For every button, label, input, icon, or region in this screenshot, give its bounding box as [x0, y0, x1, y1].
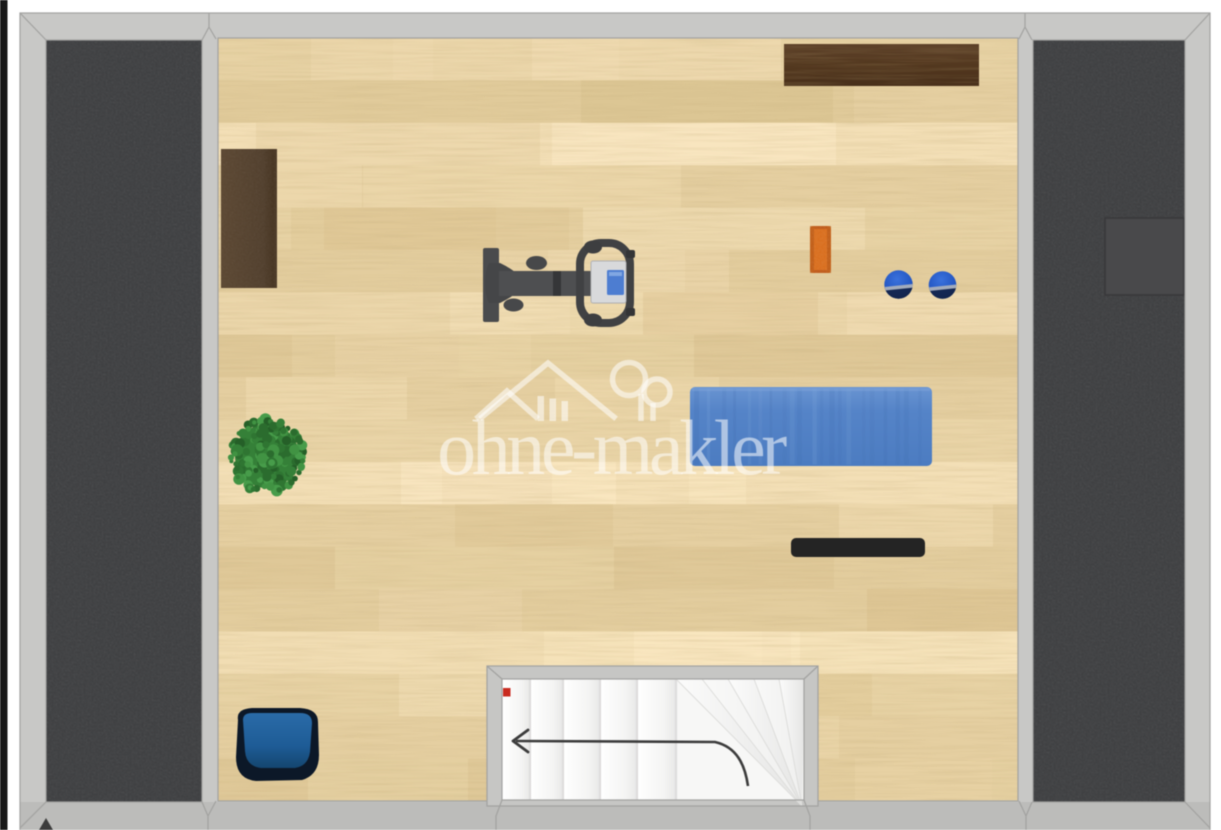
- svg-text:ohne-makler: ohne-makler: [437, 404, 787, 491]
